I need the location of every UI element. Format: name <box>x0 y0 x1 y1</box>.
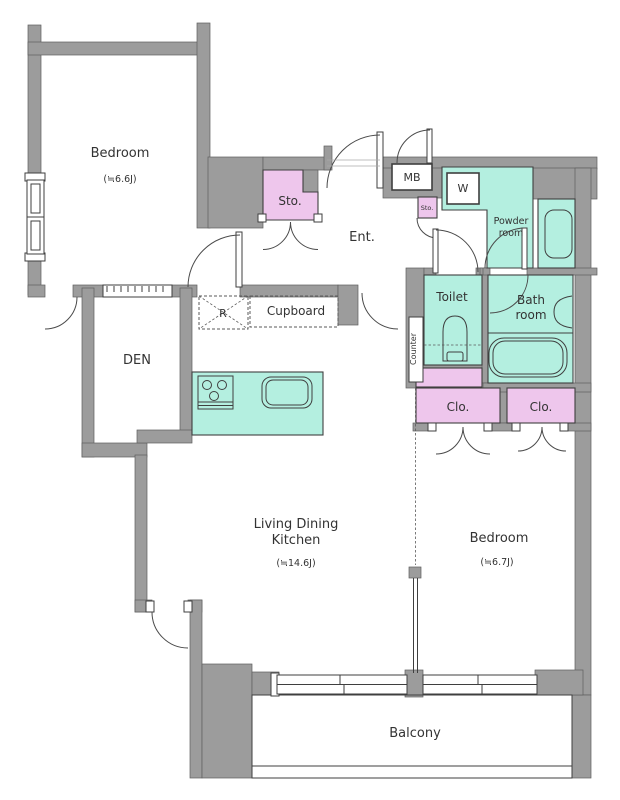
bedroom-top-label: Bedroom <box>91 146 150 161</box>
mb-door-leaf <box>427 129 432 163</box>
sliding-door-bedroom <box>423 675 537 694</box>
powder-label-line2: room <box>499 228 524 239</box>
toilet-door-leaf <box>433 229 438 273</box>
bath-label-line1: Bath <box>517 293 545 307</box>
bathroom-floor <box>488 275 573 383</box>
meter-box-label: MB <box>403 171 420 184</box>
bedroom-right-label: Bedroom <box>470 531 529 546</box>
den-label: DEN <box>123 353 151 368</box>
ldk-size: (≒14.6J) <box>276 558 315 569</box>
closet-left-label: Clo. <box>447 400 470 414</box>
window-bedroom-top <box>25 173 45 261</box>
ldk-label-line1: Living Dining <box>254 517 339 532</box>
bedroom-top-size: (≒6.6J) <box>103 174 136 185</box>
floor-plan-page: Bedroom (≒6.6J) DEN Ent. Living Dining K… <box>0 0 620 800</box>
closet-right-label: Clo. <box>530 400 553 414</box>
washer-label: W <box>458 182 469 195</box>
storage-small-label: Sto. <box>421 204 434 212</box>
cupboard-label: Cupboard <box>267 304 325 318</box>
refrigerator-label: R <box>219 307 227 320</box>
entrance-label: Ent. <box>349 230 375 245</box>
bedroom-right-size: (≒6.7J) <box>480 557 513 568</box>
bedroom-top-door-leaf <box>236 232 242 287</box>
ldk-label-line2: Kitchen <box>272 533 321 548</box>
storage-large-label: Sto. <box>278 194 301 208</box>
toilet-label: Toilet <box>435 290 468 304</box>
bath-label-line2: room <box>515 308 546 322</box>
kitchen-counter <box>192 372 323 435</box>
powder-label-line1: Powder <box>494 216 529 227</box>
balcony-label: Balcony <box>389 726 441 741</box>
closet-upper-strip <box>416 368 482 387</box>
sliding-door-ldk <box>271 673 407 696</box>
floor-plan: Bedroom (≒6.6J) DEN Ent. Living Dining K… <box>0 0 620 800</box>
den-top-hatched-opening <box>103 285 172 297</box>
counter-label: Counter <box>409 332 418 365</box>
